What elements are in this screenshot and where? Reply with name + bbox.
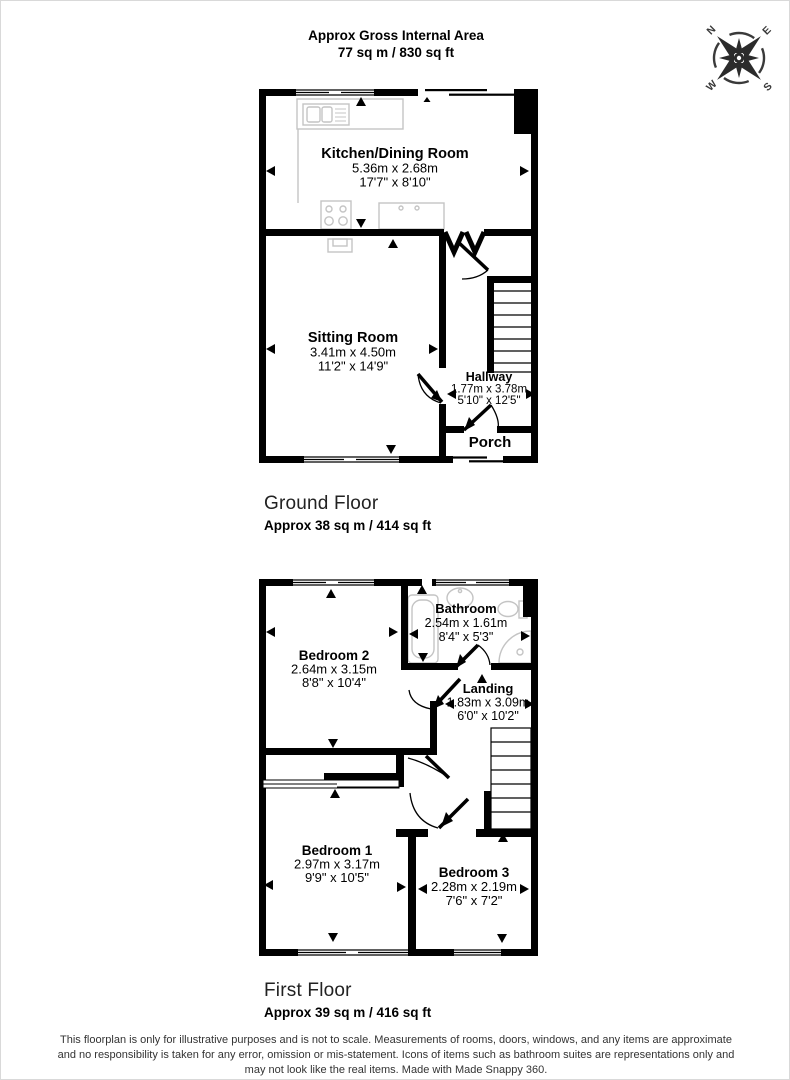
wardrobe-icon — [263, 780, 399, 788]
bedroom2-label: Bedroom 2 2.64m x 3.15m 8'8" x 10'4" — [291, 648, 377, 690]
kitchen-window-2 — [418, 89, 514, 96]
svg-text:1.77m x 3.78m: 1.77m x 3.78m — [451, 384, 527, 396]
svg-text:8'8" x 10'4": 8'8" x 10'4" — [302, 675, 366, 690]
landing-label: Landing 1.83m x 3.09m 6'0" x 10'2" — [447, 681, 530, 723]
svg-text:Bathroom: Bathroom — [435, 601, 496, 616]
compass-west-label: W — [704, 78, 720, 94]
porch-window — [453, 456, 503, 463]
svg-text:11'2" x 14'9": 11'2" x 14'9" — [318, 359, 389, 374]
page-title: Approx Gross Internal Area 77 sq m / 830… — [1, 27, 790, 61]
ff-doors — [408, 645, 490, 828]
kitchen-window — [296, 89, 374, 96]
svg-text:8'4" x 5'3": 8'4" x 5'3" — [439, 630, 494, 644]
bedroom1-window — [298, 949, 408, 956]
svg-text:7'6" x 7'2": 7'6" x 7'2" — [446, 893, 503, 908]
ff-chimney-block — [523, 584, 538, 617]
page-title-line1: Approx Gross Internal Area — [1, 27, 790, 44]
bedroom3-label: Bedroom 3 2.28m x 2.19m 7'6" x 7'2" — [431, 865, 517, 908]
kitchen-dining-label: Kitchen/Dining Room 5.36m x 2.68m 17'7" … — [321, 146, 468, 190]
svg-text:17'7" x 8'10": 17'7" x 8'10" — [359, 175, 431, 190]
svg-text:2.28m x 2.19m: 2.28m x 2.19m — [431, 879, 517, 894]
fireplace-icon — [328, 239, 352, 252]
svg-text:Bedroom 3: Bedroom 3 — [439, 865, 510, 880]
stove-icon — [321, 201, 351, 229]
bedroom3-door-icon — [410, 793, 468, 828]
compass-north-label: N — [704, 23, 718, 37]
svg-text:5'10" x 12'5": 5'10" x 12'5" — [457, 395, 520, 407]
first-floor-title: First Floor — [264, 980, 564, 1002]
compass-east-label: E — [760, 24, 773, 37]
cupboard-door-icon — [408, 756, 449, 778]
page-title-line2: 77 sq m / 830 sq ft — [1, 44, 790, 61]
svg-text:Hallway: Hallway — [466, 370, 513, 384]
gf-stairs — [494, 291, 531, 372]
disclaimer: This floorplan is only for illustrative … — [1, 1033, 790, 1078]
compass-south-label: S — [761, 80, 774, 93]
sitting-room-label: Sitting Room 3.41m x 4.50m 11'2" x 14'9" — [308, 330, 398, 374]
disclaimer-line2: and no responsibility is taken for any e… — [1, 1048, 790, 1063]
porch-door-icon — [464, 405, 498, 431]
svg-text:Landing: Landing — [463, 681, 514, 696]
svg-text:3.41m x 4.50m: 3.41m x 4.50m — [310, 345, 396, 360]
first-floor-plan: Bedroom 2 2.64m x 3.15m 8'8" x 10'4" Bat… — [256, 576, 541, 959]
svg-text:1.83m x 3.09m: 1.83m x 3.09m — [447, 696, 530, 710]
bathroom-window — [436, 579, 509, 586]
sitting-room-window — [304, 456, 399, 463]
ground-floor-plan: Kitchen/Dining Room 5.36m x 2.68m 17'7" … — [256, 86, 541, 466]
ground-floor-title: Ground Floor — [264, 493, 564, 515]
disclaimer-line3: may not look like the real items. Made w… — [1, 1063, 790, 1078]
first-floor-caption: First Floor Approx 39 sq m / 416 sq ft — [264, 980, 564, 1020]
svg-text:9'9" x 10'5": 9'9" x 10'5" — [305, 870, 369, 885]
ground-floor-caption: Ground Floor Approx 38 sq m / 414 sq ft — [264, 493, 564, 533]
sitting-room-door-icon — [418, 374, 442, 403]
compass-rose-icon: N E S W — [689, 9, 789, 109]
worktop-icon — [379, 203, 444, 229]
svg-text:2.54m x 1.61m: 2.54m x 1.61m — [425, 616, 508, 630]
hallway-label: Hallway 1.77m x 3.78m 5'10" x 12'5" — [451, 370, 527, 407]
svg-text:5.36m x 2.68m: 5.36m x 2.68m — [352, 161, 438, 176]
porch-label: Porch — [469, 434, 512, 451]
bathroom-label: Bathroom 2.54m x 1.61m 8'4" x 5'3" — [425, 601, 508, 644]
first-floor-area: Approx 39 sq m / 416 sq ft — [264, 1005, 564, 1020]
bedroom3-window — [454, 949, 501, 956]
bedroom2-window — [293, 579, 374, 586]
bedroom1-label: Bedroom 1 2.97m x 3.17m 9'9" x 10'5" — [294, 843, 380, 885]
floorplan-page: Approx Gross Internal Area 77 sq m / 830… — [0, 0, 790, 1080]
ground-floor-area: Approx 38 sq m / 414 sq ft — [264, 518, 564, 533]
kitchen-sink-icon — [303, 104, 349, 125]
ff-stairs — [491, 728, 531, 829]
svg-text:6'0" x 10'2": 6'0" x 10'2" — [457, 709, 519, 723]
bathroom-door-icon — [456, 645, 490, 668]
disclaimer-line1: This floorplan is only for illustrative … — [1, 1033, 790, 1048]
